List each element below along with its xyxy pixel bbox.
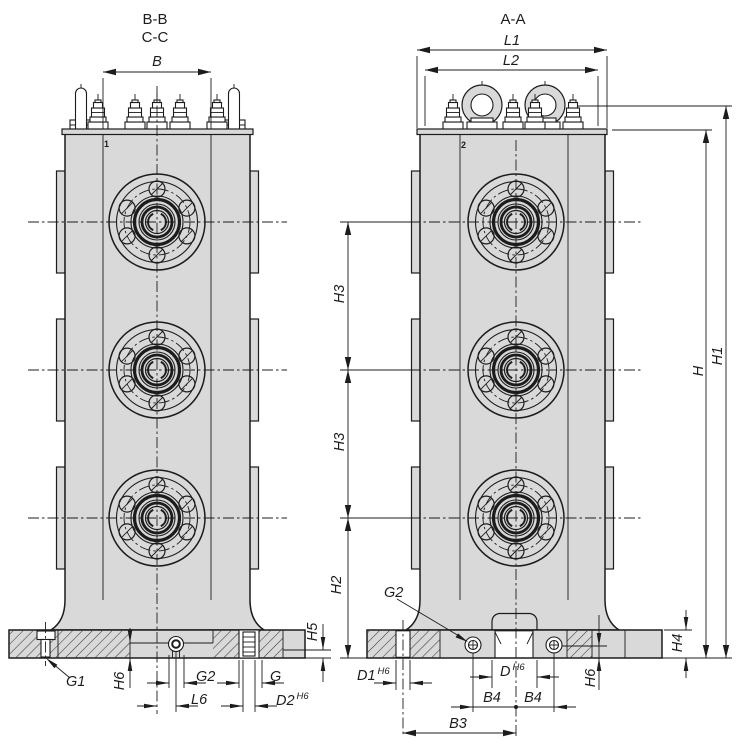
d2-stud	[239, 630, 259, 658]
dim-label-h2: H2	[329, 576, 345, 595]
left-view-title-cc: C-C	[142, 29, 169, 46]
dim-label-b4-right: B4	[524, 690, 542, 706]
dim-label-b3: B3	[449, 716, 467, 732]
dim-label-g1: G1	[66, 674, 85, 690]
dim-label-h4: H4	[670, 634, 686, 653]
dim-label-h5: H5	[305, 622, 321, 641]
left-view: B-B C-C 1 B G1 H6 G2 L6 G D2H6 H5	[9, 11, 331, 714]
dim-label-h3-upper: H3	[332, 285, 348, 304]
drawing-canvas: B-B C-C 1 B G1 H6 G2 L6 G D2H6 H5	[0, 0, 741, 750]
dim-label-g: G	[270, 669, 281, 685]
right-view-part-marker: 2	[461, 140, 466, 150]
left-view-part-marker: 1	[104, 139, 109, 149]
dim-label-h3-lower: H3	[332, 433, 348, 452]
dim-label-h1: H1	[710, 347, 726, 366]
dim-label-h: H	[691, 365, 707, 376]
dim-label-g2-right: G2	[384, 585, 403, 601]
dim-label-d: DH6	[500, 662, 525, 680]
dim-label-h6-left: H6	[112, 671, 128, 690]
dim-label-d2: D2H6	[276, 691, 309, 709]
dim-label-l1: L1	[504, 33, 520, 49]
left-view-title-bb: B-B	[142, 11, 167, 28]
right-view-base	[367, 614, 662, 738]
dim-label-b4-left: B4	[483, 690, 501, 706]
dim-label-g2-left: G2	[196, 669, 215, 685]
d1-hole	[396, 620, 410, 737]
technical-drawing-svg: B-B C-C 1 B G1 H6 G2 L6 G D2H6 H5	[0, 0, 741, 750]
right-view-title-aa: A-A	[500, 11, 525, 28]
right-view: A-A 2 L1 L2 H3 H3 H2 H H1 H4 H6 G2 D1H6 …	[329, 11, 732, 737]
dim-label-h6-right: H6	[583, 668, 599, 687]
g2-hole-right-b	[546, 637, 562, 653]
g2-hole-right-a	[465, 637, 481, 653]
dim-label-b: B	[152, 54, 162, 70]
dim-label-l6: L6	[191, 692, 208, 708]
dim-label-l2: L2	[503, 53, 519, 69]
